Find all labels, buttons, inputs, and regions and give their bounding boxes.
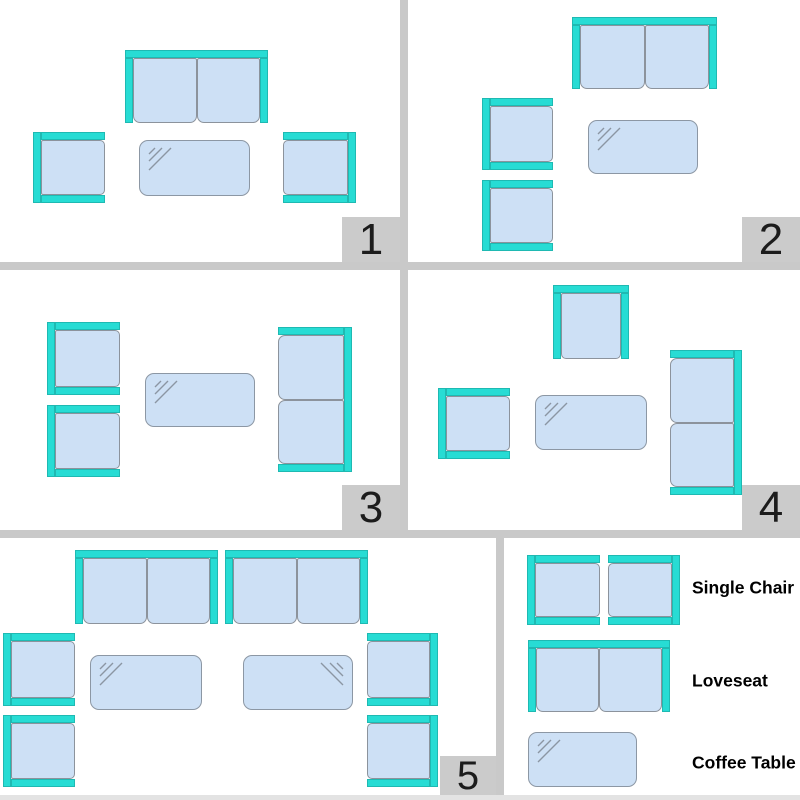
- glass-shine-icon: [152, 379, 182, 407]
- sofa-arm-bar: [260, 58, 268, 123]
- seat-cushion: [41, 140, 105, 195]
- sofa-back-bar: [572, 17, 717, 25]
- chair-arm-bar: [608, 555, 672, 563]
- chair-back-bar: [348, 132, 356, 203]
- single-chair: [482, 98, 553, 170]
- single-chair: [3, 633, 75, 706]
- layout-panel-3: 3: [0, 270, 400, 530]
- loveseat: [670, 350, 742, 495]
- chair-arm-bar: [553, 293, 561, 359]
- chair-arm-bar: [490, 180, 553, 188]
- furniture-layout-diagram: 1 2 3 4 5 Single Chair Loveseat Coffee T…: [0, 0, 800, 800]
- chair-arm-bar: [367, 779, 430, 787]
- layout-panel-4: 4: [408, 270, 800, 530]
- single-chair: [553, 285, 629, 359]
- chair-arm-bar: [367, 715, 430, 723]
- panel-number-badge: 3: [342, 485, 400, 530]
- glass-shine-icon: [542, 401, 572, 429]
- coffee-table: [139, 140, 250, 196]
- single-chair: [367, 715, 438, 787]
- divider-horizontal-1: [0, 262, 800, 270]
- chair-arm-bar: [55, 405, 120, 413]
- seat-cushion: [608, 563, 672, 617]
- seat-cushion: [278, 335, 344, 400]
- chair-arm-bar: [490, 243, 553, 251]
- seat-cushion: [490, 106, 553, 162]
- chair-back-bar: [47, 322, 55, 395]
- sofa-arm-bar: [360, 558, 368, 624]
- chair-arm-bar: [535, 617, 600, 625]
- loveseat: [278, 327, 352, 472]
- single-chair: [47, 322, 120, 395]
- seat-cushion: [283, 140, 348, 195]
- chair-arm-bar: [11, 779, 75, 787]
- chair-arm-bar: [490, 98, 553, 106]
- sofa-back-bar: [344, 327, 352, 472]
- legend-label-coffee-table: Coffee Table: [692, 753, 796, 774]
- seat-cushion: [670, 423, 734, 488]
- single-chair: [527, 555, 600, 625]
- chair-back-bar: [430, 715, 438, 787]
- seat-cushion: [645, 25, 710, 89]
- seat-cushion: [55, 413, 120, 469]
- single-chair: [33, 132, 105, 203]
- seat-cushion: [55, 330, 120, 387]
- glass-shine-icon: [535, 738, 565, 766]
- seat-cushion: [197, 58, 261, 123]
- seat-cushion: [297, 558, 361, 624]
- divider-vertical-row1: [400, 0, 408, 262]
- sofa-arm-bar: [670, 487, 734, 495]
- chair-arm-bar: [11, 715, 75, 723]
- chair-arm-bar: [55, 322, 120, 330]
- panel-number-badge: 4: [742, 485, 800, 530]
- layout-panel-2: 2: [408, 0, 800, 262]
- seat-cushion: [535, 563, 600, 617]
- sofa-back-bar: [225, 550, 368, 558]
- coffee-table: [145, 373, 255, 427]
- chair-arm-bar: [367, 698, 430, 706]
- glass-shine-icon: [595, 126, 625, 154]
- coffee-table: [528, 732, 637, 787]
- seat-cushion: [599, 648, 662, 712]
- layout-panel-5: 5: [0, 538, 496, 795]
- seat-cushion: [367, 641, 430, 698]
- coffee-table: [535, 395, 647, 450]
- chair-arm-bar: [621, 293, 629, 359]
- sofa-arm-bar: [210, 558, 218, 624]
- loveseat: [225, 550, 368, 624]
- seat-cushion: [278, 400, 344, 465]
- sofa-arm-bar: [225, 558, 233, 624]
- chair-back-bar: [482, 98, 490, 170]
- single-chair: [367, 633, 438, 706]
- chair-back-bar: [430, 633, 438, 706]
- single-chair: [47, 405, 120, 477]
- sofa-back-bar: [528, 640, 670, 648]
- seat-cushion: [233, 558, 297, 624]
- legend-panel: Single Chair Loveseat Coffee Table: [504, 538, 800, 795]
- chair-arm-bar: [55, 469, 120, 477]
- chair-back-bar: [3, 633, 11, 706]
- chair-arm-bar: [535, 555, 600, 563]
- seat-cushion: [147, 558, 211, 624]
- loveseat: [528, 640, 670, 712]
- chair-arm-bar: [367, 633, 430, 641]
- sofa-arm-bar: [670, 350, 734, 358]
- chair-back-bar: [672, 555, 680, 625]
- chair-arm-bar: [11, 633, 75, 641]
- chair-back-bar: [3, 715, 11, 787]
- chair-back-bar: [553, 285, 629, 293]
- seat-cushion: [561, 293, 621, 359]
- single-chair: [283, 132, 356, 203]
- seat-cushion: [580, 25, 645, 89]
- sofa-arm-bar: [572, 25, 580, 89]
- chair-arm-bar: [283, 195, 348, 203]
- chair-back-bar: [527, 555, 535, 625]
- seat-cushion: [133, 58, 197, 123]
- coffee-table: [588, 120, 698, 174]
- chair-arm-bar: [446, 388, 510, 396]
- divider-vertical-row3: [496, 538, 504, 796]
- sofa-arm-bar: [528, 648, 536, 712]
- chair-arm-bar: [41, 132, 105, 140]
- chair-arm-bar: [283, 132, 348, 140]
- single-chair: [608, 555, 680, 625]
- sofa-arm-bar: [709, 25, 717, 89]
- glass-shine-icon: [316, 661, 346, 689]
- sofa-back-bar: [125, 50, 268, 58]
- single-chair: [3, 715, 75, 787]
- chair-arm-bar: [11, 698, 75, 706]
- bottom-edge-strip: [0, 795, 800, 800]
- sofa-arm-bar: [125, 58, 133, 123]
- sofa-arm-bar: [278, 327, 344, 335]
- legend-label-loveseat: Loveseat: [692, 671, 768, 692]
- seat-cushion: [83, 558, 147, 624]
- seat-cushion: [490, 188, 553, 243]
- layout-panel-1: 1: [0, 0, 400, 262]
- loveseat: [125, 50, 268, 123]
- chair-arm-bar: [490, 162, 553, 170]
- chair-back-bar: [482, 180, 490, 251]
- coffee-table: [90, 655, 202, 710]
- single-chair: [482, 180, 553, 251]
- chair-arm-bar: [446, 451, 510, 459]
- seat-cushion: [536, 648, 599, 712]
- chair-back-bar: [47, 405, 55, 477]
- glass-shine-icon: [97, 661, 127, 689]
- loveseat: [75, 550, 218, 624]
- coffee-table: [243, 655, 353, 710]
- chair-arm-bar: [608, 617, 672, 625]
- chair-arm-bar: [41, 195, 105, 203]
- panel-number-badge: 2: [742, 217, 800, 262]
- glass-shine-icon: [146, 146, 176, 174]
- seat-cushion: [11, 723, 75, 779]
- seat-cushion: [670, 358, 734, 423]
- legend-label-single-chair: Single Chair: [692, 578, 794, 599]
- chair-arm-bar: [55, 387, 120, 395]
- single-chair: [438, 388, 510, 459]
- divider-vertical-row2: [400, 270, 408, 530]
- chair-back-bar: [33, 132, 41, 203]
- sofa-arm-bar: [75, 558, 83, 624]
- panel-number-badge: 1: [342, 217, 400, 262]
- sofa-back-bar: [734, 350, 742, 495]
- sofa-arm-bar: [662, 648, 670, 712]
- sofa-back-bar: [75, 550, 218, 558]
- seat-cushion: [446, 396, 510, 451]
- loveseat: [572, 17, 717, 89]
- chair-back-bar: [438, 388, 446, 459]
- panel-number-badge: 5: [440, 756, 496, 795]
- seat-cushion: [367, 723, 430, 779]
- seat-cushion: [11, 641, 75, 698]
- divider-horizontal-2: [0, 530, 800, 538]
- sofa-arm-bar: [278, 464, 344, 472]
